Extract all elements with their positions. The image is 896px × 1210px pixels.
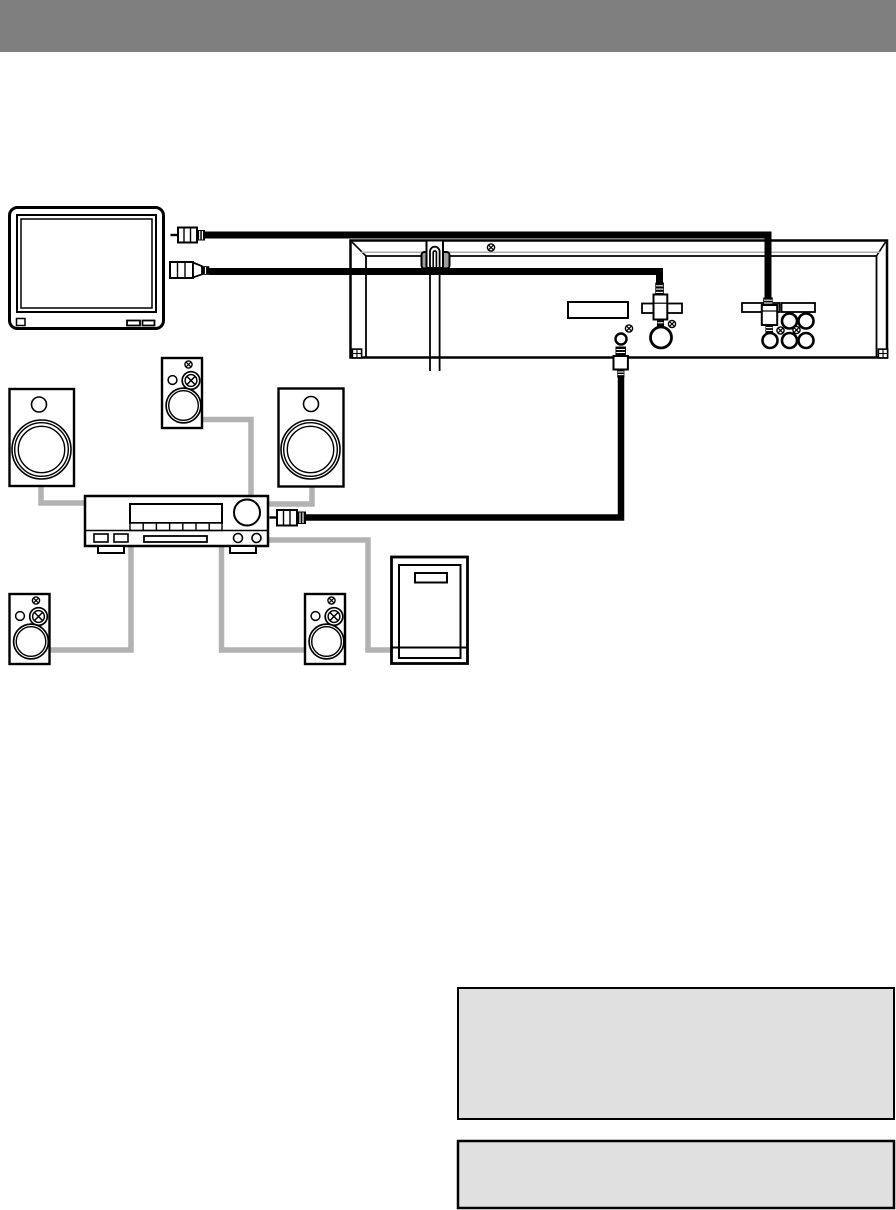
amp-small-knob-2 xyxy=(252,534,261,543)
connection-diagram xyxy=(0,0,896,1210)
rca-block-screw xyxy=(793,326,800,333)
subwoofer-badge xyxy=(415,573,447,583)
rca-jack xyxy=(799,314,814,329)
svideo-jack xyxy=(651,327,672,348)
amp-selector-button-2 xyxy=(114,534,128,542)
tv-control-bar-1 xyxy=(127,321,140,326)
rca-jack xyxy=(799,333,814,348)
panel-screw xyxy=(487,244,494,251)
speaker-center xyxy=(162,358,202,428)
note-box-2 xyxy=(458,1141,894,1208)
speaker-surround-left xyxy=(10,594,50,664)
tv xyxy=(10,208,164,329)
panel-label-plate-right xyxy=(782,303,816,312)
amplifier xyxy=(85,496,268,553)
tv-power-button xyxy=(17,319,26,326)
wire-center xyxy=(202,420,251,498)
rca-block-screw xyxy=(777,327,784,334)
speaker-surround-right xyxy=(305,594,345,664)
digital-audio-jack xyxy=(616,334,627,345)
audio-cable-panel-plug xyxy=(614,347,628,378)
amp-volume-knob xyxy=(234,500,260,526)
subwoofer xyxy=(392,557,468,664)
tv-control-bar-2 xyxy=(143,321,155,326)
audio-cable-amp-plug xyxy=(270,510,307,526)
speaker-front-right xyxy=(279,389,344,487)
amp-small-knob-1 xyxy=(234,534,243,543)
speaker-front-left xyxy=(10,389,75,486)
amp-cassette-slot xyxy=(144,536,207,542)
amp-foot-left xyxy=(98,546,124,553)
amp-display xyxy=(130,504,222,523)
svideo-jack-screw xyxy=(668,320,675,327)
rca-jack xyxy=(763,333,778,348)
tv-screen xyxy=(21,219,152,308)
wire-front-right xyxy=(268,487,312,504)
rca-jack xyxy=(782,333,797,348)
digital-jack-screw xyxy=(625,325,632,332)
wire-surround-left xyxy=(48,545,131,650)
panel-label-plate-left xyxy=(568,302,628,318)
video-cable-tv-plug xyxy=(171,228,206,243)
wire-surround-right xyxy=(222,545,306,650)
panel-foot-left xyxy=(352,349,361,358)
amp-foot-right xyxy=(230,546,256,553)
note-box-1 xyxy=(458,988,894,1119)
amp-selector-button-1 xyxy=(94,534,108,542)
panel-foot-right xyxy=(878,349,887,358)
page-header-bar xyxy=(0,0,896,52)
svideo-cable-tv-plug xyxy=(170,262,209,278)
